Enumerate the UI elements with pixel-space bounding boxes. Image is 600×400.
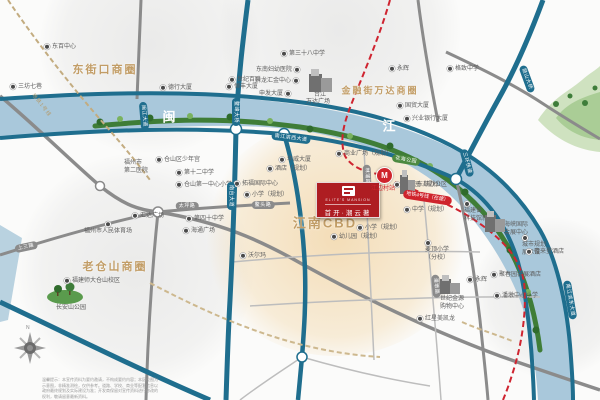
disclaimer-line: 权利，敬请留意最新资料。 bbox=[42, 394, 172, 400]
logo-name-en: ELITE'S MANSION bbox=[325, 198, 370, 202]
metro-line1-dashed bbox=[8, 0, 150, 180]
map-base-layer bbox=[0, 0, 600, 400]
metro-station-label: 江边村站 bbox=[371, 183, 395, 192]
road-taiping bbox=[158, 203, 290, 212]
logo-emblem-icon bbox=[342, 186, 355, 196]
road-gushan-bridge bbox=[456, 0, 543, 179]
road-aofeng-bridge bbox=[226, 0, 248, 400]
logo-name-cn: 首开·潮云著 bbox=[325, 204, 372, 217]
road-north-vertical bbox=[418, 0, 438, 122]
metro-line5-dashed bbox=[150, 283, 380, 357]
disclaimer-text: 温馨提示：本宣传资料为要约邀请，不构成要约内容；本区位图为示意图，非精准测绘，仅… bbox=[42, 377, 172, 399]
metro-station-icon: M bbox=[376, 167, 393, 184]
changanshan-park-icon bbox=[47, 283, 83, 305]
road-topleft-vertical bbox=[137, 0, 141, 99]
road-shangsan bbox=[0, 212, 158, 255]
riverbank-strip bbox=[95, 120, 540, 350]
compass-north-label: N bbox=[26, 325, 30, 331]
metro-line5-dashed-east bbox=[462, 322, 512, 341]
disclaimer-line: 政府最终规划及实际建设为准；开发商保留对宣传资料进行修改的 bbox=[42, 388, 172, 394]
disclaimer-line: 温馨提示：本宣传资料为要约邀请，不构成要约内容；本区位图为 bbox=[42, 377, 172, 383]
compass bbox=[14, 332, 46, 364]
location-map: 东百中心三坊七巷德行大厦第三十八中学东南妇幼医院世纪百联升龙汇金中心恒丰大厦申发… bbox=[0, 0, 600, 400]
